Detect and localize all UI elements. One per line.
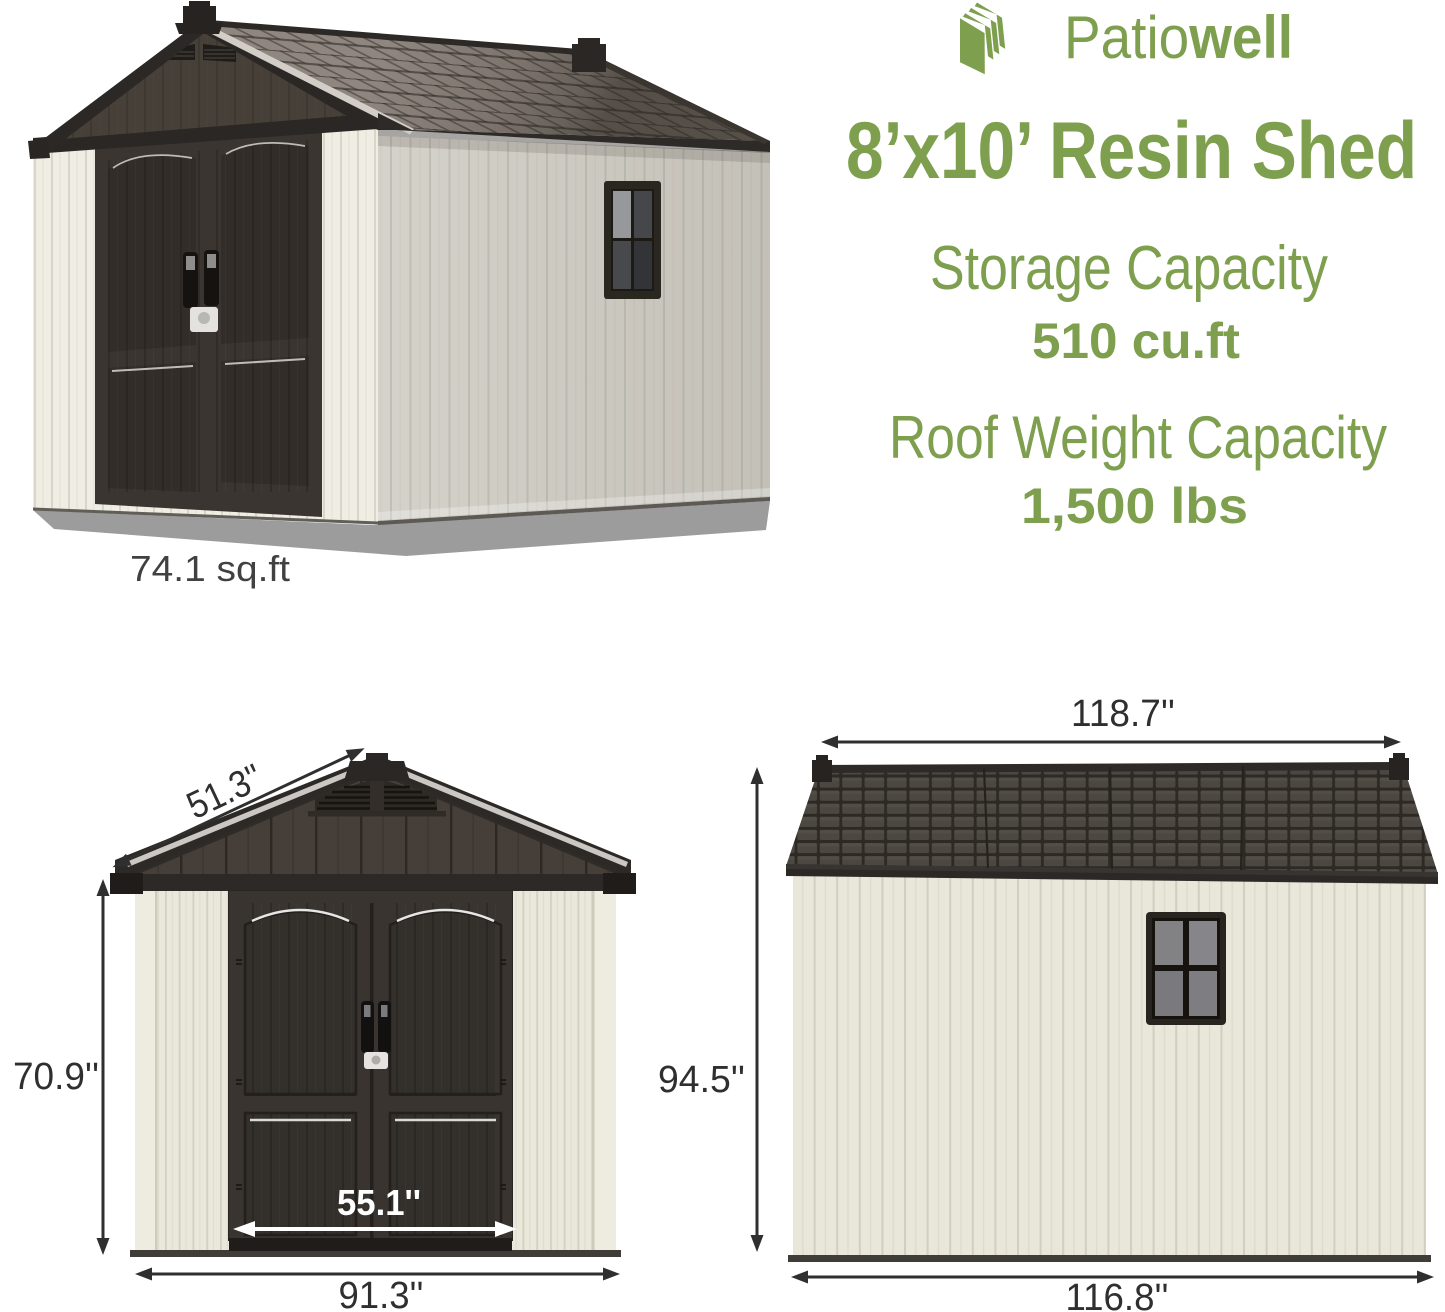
svg-text:55.1'': 55.1'' [337, 1182, 421, 1223]
svg-text:118.7'': 118.7'' [1071, 693, 1175, 735]
svg-text:70.9'': 70.9'' [13, 1056, 99, 1098]
svg-text:Patiowell: Patiowell [1064, 4, 1293, 71]
svg-text:8’x10’ Resin Shed: 8’x10’ Resin Shed [846, 106, 1417, 196]
svg-text:116.8'': 116.8'' [1066, 1277, 1169, 1312]
svg-text:Storage Capacity: Storage Capacity [930, 234, 1328, 303]
svg-text:91.3'': 91.3'' [339, 1275, 424, 1312]
svg-text:510 cu.ft: 510 cu.ft [1032, 313, 1240, 369]
svg-text:1,500 lbs: 1,500 lbs [1021, 478, 1248, 534]
svg-text:94.5'': 94.5'' [658, 1059, 745, 1101]
svg-text:Roof Weight Capacity: Roof Weight Capacity [889, 404, 1387, 471]
svg-text:74.1 sq.ft: 74.1 sq.ft [130, 548, 290, 589]
